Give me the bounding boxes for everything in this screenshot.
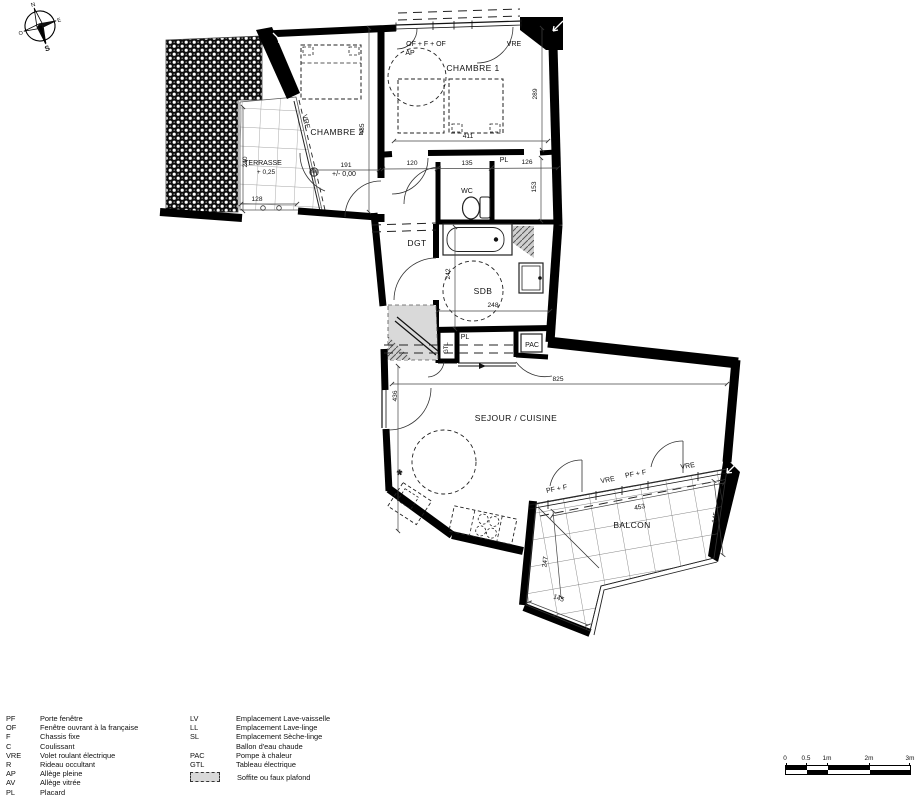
sejour-level-label: +/- 0,00: [332, 171, 356, 178]
terrasse-area: TERRASSE + 0,25 VRE: [160, 27, 325, 218]
room-label-pl-mid: PL: [461, 334, 470, 341]
legend-abbr: PL: [6, 788, 40, 797]
door-swing-wc: [404, 167, 441, 204]
dim-sdb-height: 242: [445, 268, 452, 279]
legend-label: Emplacement Lave-vaisselle: [236, 714, 330, 723]
room-label-wc: WC: [461, 188, 473, 195]
dim-sejour-height: 436: [392, 390, 399, 401]
opening-label-vre-balcon-left: VRE: [600, 476, 616, 485]
legend-row: APAllège pleine: [6, 769, 176, 778]
dim-pl-depth: 153: [531, 181, 538, 192]
compass-south-label: S: [43, 43, 51, 53]
ceiling-dashed-lines: [372, 9, 722, 516]
clearance-circle-chambre1: [388, 48, 446, 106]
scale-bar-graphic: [785, 765, 911, 775]
room-label-sdb: SDB: [474, 286, 493, 296]
soffite-swatch: [190, 772, 220, 782]
legend-abbr: AP: [6, 769, 40, 778]
legend-label: Volet roulant électrique: [40, 751, 115, 760]
legend-abbr: C: [6, 742, 40, 751]
dim-hall-width: 120: [406, 160, 417, 167]
room-label-pl-top: PL: [500, 157, 509, 164]
legend-abbr: R: [6, 760, 40, 769]
legend-label: Fenêtre ouvrant à la française: [40, 723, 138, 732]
table-sejour: [412, 430, 476, 494]
toilet: [463, 197, 480, 219]
room-label-balcon: BALCON: [613, 520, 650, 530]
wardrobe-chambre1: [398, 79, 444, 133]
room-label-chambre1: CHAMBRE 1: [446, 63, 499, 73]
floor-plan-drawing: N E S O TERRASSE + 0,25 VRE: [0, 0, 916, 800]
legend-abbr: F: [6, 732, 40, 741]
dim-terrasse-depth: 240: [242, 156, 249, 167]
opening-label-vre-balcon-right: VRE: [680, 462, 696, 471]
door-swing-sdb: [394, 258, 436, 300]
legend-row: LLEmplacement Lave-linge: [190, 723, 410, 732]
compass-west-label: O: [18, 30, 25, 37]
window-swing-balcon-right: [651, 441, 683, 473]
level-symbol: [310, 168, 318, 176]
legend-row: PLPlacard: [6, 788, 176, 797]
legend-abbr: [190, 742, 236, 751]
legend-label: Allège pleine: [40, 769, 82, 778]
opening-label-pf-f-right: PF + F: [625, 469, 647, 480]
entry-arrow-icon: [479, 363, 486, 369]
legend-row: AVAllège vitrée: [6, 778, 176, 787]
scale-tick-label: 2m: [865, 755, 874, 762]
room-label-sejour: SEJOUR / CUISINE: [475, 413, 557, 423]
legend-column-openings: PFPorte fenêtre OFFenêtre ouvrant à la f…: [6, 714, 176, 797]
legend-row: VREVolet roulant électrique: [6, 751, 176, 760]
legend-column-equipment: LVEmplacement Lave-vaisselle LLEmplaceme…: [190, 714, 410, 782]
balcon-area: BALCON: [526, 469, 727, 635]
legend-abbr: LV: [190, 714, 236, 723]
floor-plan-page: N E S O TERRASSE + 0,25 VRE: [0, 0, 916, 800]
legend-row: SLEmplacement Sèche-linge: [190, 732, 410, 741]
legend-row: LVEmplacement Lave-vaisselle: [190, 714, 410, 723]
window-swing-sejour-corner: [516, 362, 552, 377]
balcon-tiles: [526, 469, 727, 631]
room-label-dgt: DGT: [407, 238, 426, 248]
legend-abbr: GTL: [190, 760, 236, 769]
opening-label-ap: AP: [405, 50, 415, 57]
bed-chambre2: [301, 45, 361, 99]
scale-tick-label: 0.5: [802, 755, 811, 762]
compass-north-label: N: [30, 2, 36, 9]
legend-row-soffite: Soffite ou faux plafond: [190, 772, 410, 782]
legend-label: Emplacement Sèche-linge: [236, 732, 322, 741]
legend-label: Porte fenêtre: [40, 714, 83, 723]
legend-abbr: PAC: [190, 751, 236, 760]
legend-abbr: PF: [6, 714, 40, 723]
room-label-gtl: GTL: [444, 342, 450, 354]
compass-east-label: E: [57, 17, 63, 24]
legend-row: CCoulissant: [6, 742, 176, 751]
scale-tick-label: 3m: [906, 755, 915, 762]
opening-label-vre-top: VRE: [507, 41, 522, 48]
legend-abbr: SL: [190, 732, 236, 741]
legend-label: Pompe à chaleur: [236, 751, 292, 760]
legend-row: PACPompe à chaleur: [190, 751, 410, 760]
room-label-pac: PAC: [525, 342, 539, 349]
room-label-chambre2: CHAMBRE 2: [310, 127, 363, 137]
dim-terrasse-width: 128: [251, 196, 262, 203]
dim-sdb-width: 248: [487, 302, 498, 309]
legend-abbr: VRE: [6, 751, 40, 760]
dim-sejour-width: 825: [552, 376, 563, 383]
legend-label: Coulissant: [40, 742, 75, 751]
scale-bar: 0 0.5 1m 2m 3m: [785, 755, 911, 781]
opening-label-of-f-of: OF + F + OF: [406, 41, 446, 48]
scale-tick-label: 1m: [823, 755, 832, 762]
legend-row: FChassis fixe: [6, 732, 176, 741]
legend-label: Rideau occultant: [40, 760, 95, 769]
legend-label: Chassis fixe: [40, 732, 80, 741]
terrasse-level-label: + 0,25: [257, 169, 276, 176]
legend-row: GTLTableau électrique: [190, 760, 410, 769]
terrasse-tiles: [240, 97, 322, 210]
legend-label: Soffite ou faux plafond: [237, 773, 310, 782]
legend-label: Placard: [40, 788, 65, 797]
dim-chambre1-width: 411: [463, 133, 474, 140]
legend-label: Tableau électrique: [236, 760, 296, 769]
dim-chambre1-height: 289: [532, 88, 539, 99]
legend-label: Ballon d'eau chaude: [236, 742, 303, 751]
legend-row: OFFenêtre ouvrant à la française: [6, 723, 176, 732]
bed-chambre1: [449, 79, 503, 133]
room-label-terrasse: TERRASSE: [244, 160, 282, 167]
dim-hall-chambre2: 191: [340, 162, 351, 169]
dim-pl-width: 126: [521, 159, 532, 166]
furniture: *: [301, 45, 543, 545]
legend-abbr: AV: [6, 778, 40, 787]
scale-tick-label: 0: [783, 755, 787, 762]
legend-label: Allège vitrée: [40, 778, 81, 787]
legend-abbr: LL: [190, 723, 236, 732]
legend-row: PFPorte fenêtre: [6, 714, 176, 723]
legend-abbr: OF: [6, 723, 40, 732]
legend-label: Emplacement Lave-linge: [236, 723, 317, 732]
dim-balcon-depth-left: 247: [541, 556, 549, 568]
dim-wc-width: 135: [461, 160, 472, 167]
legend-row: RRideau occultant: [6, 760, 176, 769]
legend-row: Ballon d'eau chaude: [190, 742, 410, 751]
scale-bar-labels: 0 0.5 1m 2m 3m: [785, 755, 911, 763]
compass-rose-icon: N E S O: [11, 0, 70, 60]
opening-label-pf-f-left: PF + F: [546, 484, 568, 495]
